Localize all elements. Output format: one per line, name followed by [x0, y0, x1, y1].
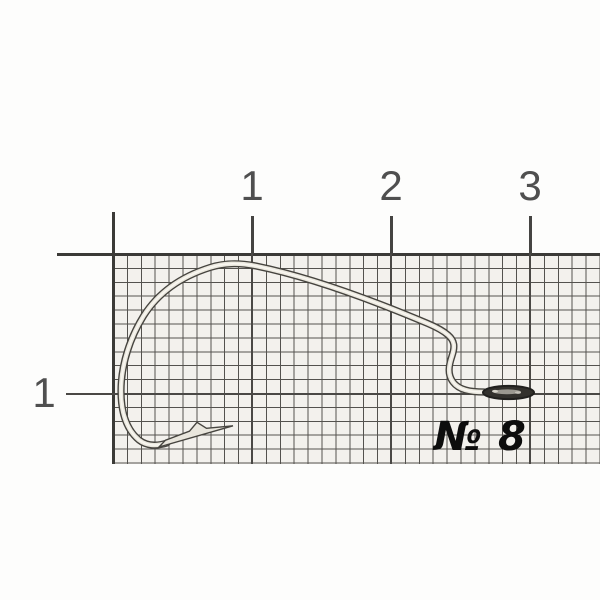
hook-point-and-barb	[159, 422, 233, 447]
fishing-hook-image	[0, 0, 600, 600]
hook-wire-highlight	[121, 264, 484, 445]
product-photo-fishing-hook: 1 2 3 1 № 8	[0, 0, 600, 600]
hook-eye	[483, 386, 534, 399]
hook-wire-outline	[121, 264, 484, 445]
hook-wire-body	[121, 264, 484, 445]
hook-size-label: № 8	[434, 417, 527, 457]
